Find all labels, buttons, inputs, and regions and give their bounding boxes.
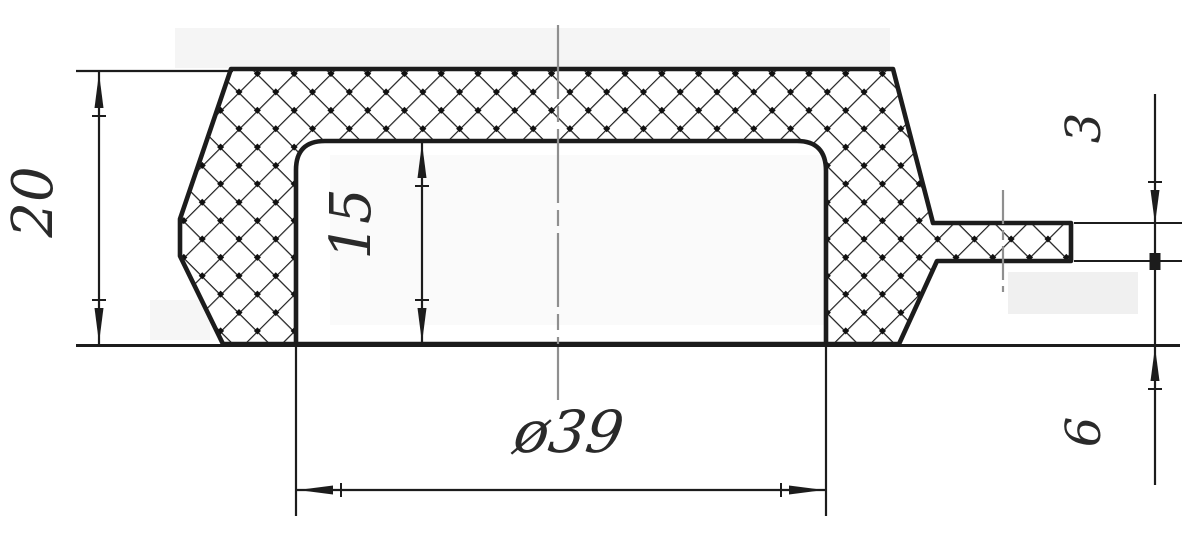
artifact-patch (330, 155, 890, 325)
dim-label-overall-height: 20 (1, 166, 66, 238)
dim-label-stem-thickness: 3 (1056, 113, 1112, 144)
arrowhead-down (418, 308, 427, 343)
dim-label-cavity-depth: 15 (319, 188, 384, 259)
artifact-patch (150, 300, 210, 340)
artifact-patch (1008, 272, 1138, 314)
arrowhead-joined (1150, 253, 1161, 270)
arrowhead-up (1151, 347, 1160, 381)
arrowhead-right (789, 486, 824, 495)
technical-drawing: 20 15 3 6 ø39 (0, 0, 1204, 552)
dim-label-rim-height: 6 (1056, 417, 1112, 448)
technical-drawing-page: 20 15 3 6 ø39 (0, 0, 1204, 552)
arrowhead-left (298, 486, 333, 495)
dim-label-cavity-diameter: ø39 (509, 398, 628, 466)
arrowhead-down (1151, 190, 1160, 224)
arrowhead-up (95, 73, 104, 108)
artifact-patch (175, 28, 890, 68)
arrowhead-down (95, 308, 104, 343)
